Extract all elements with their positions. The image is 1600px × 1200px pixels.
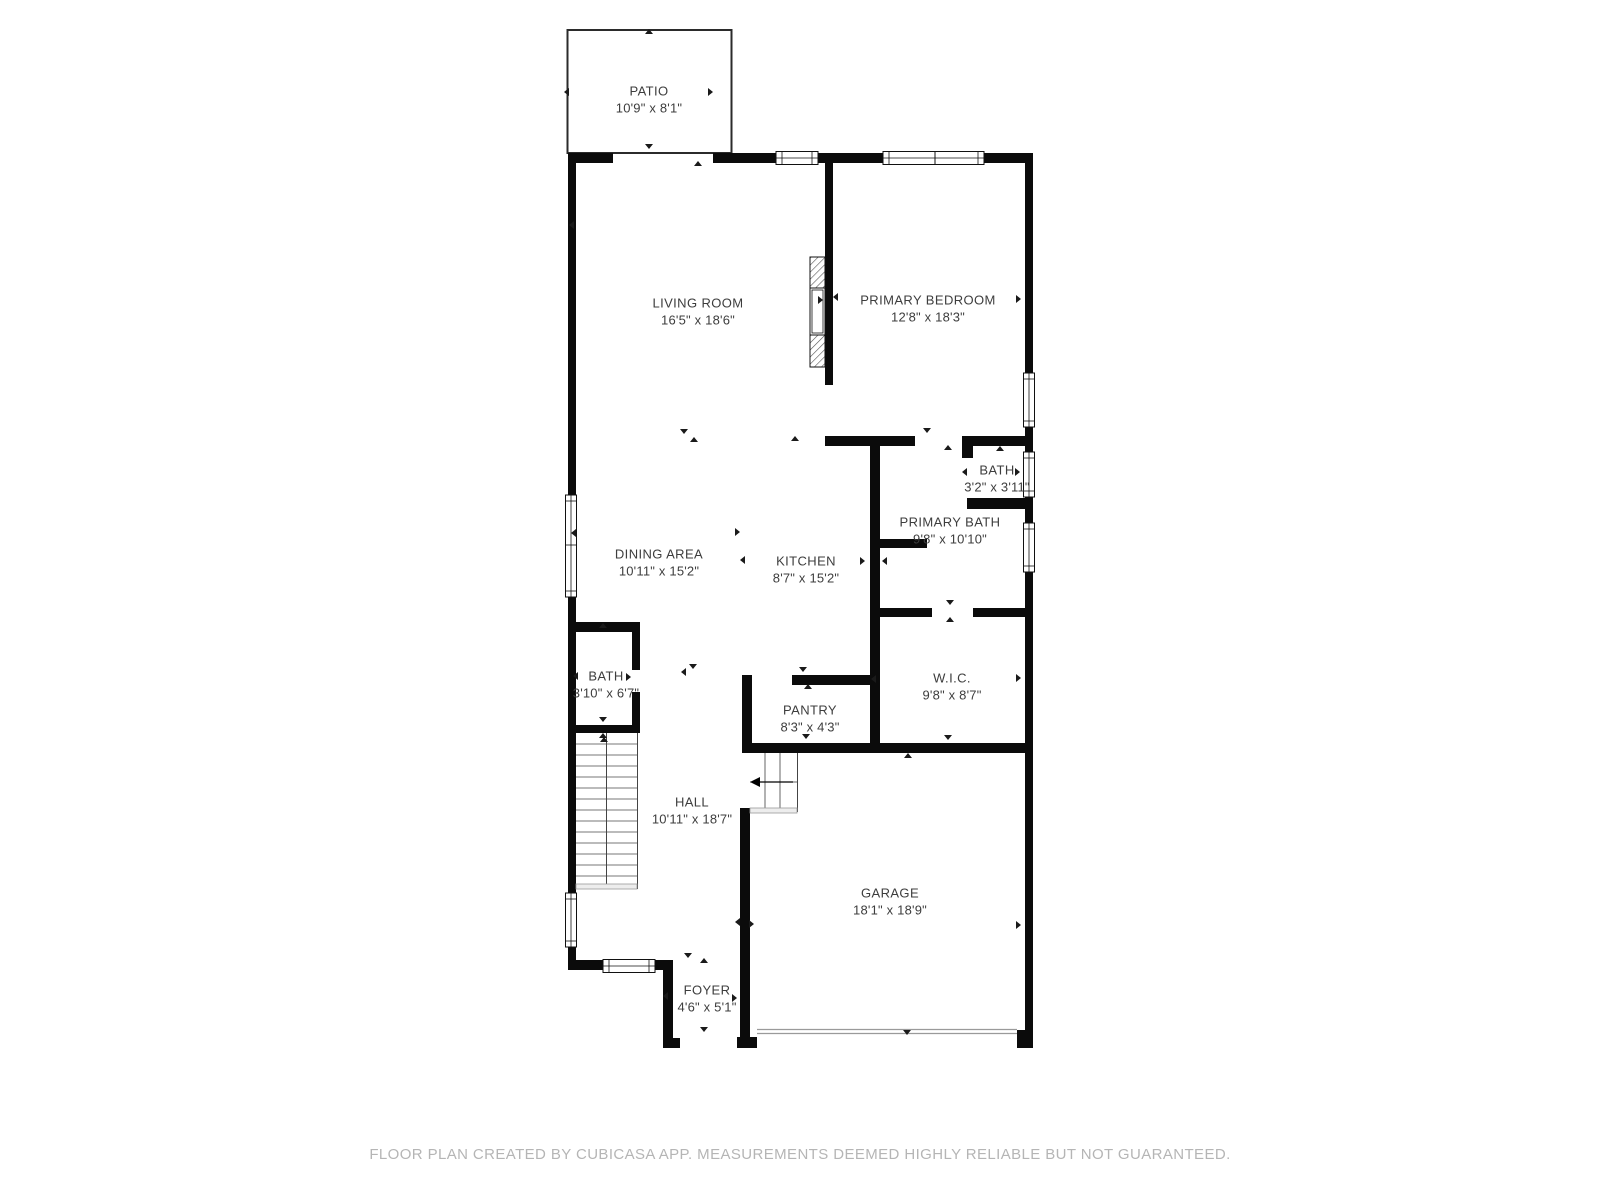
fireplace bbox=[810, 257, 825, 367]
footer-disclaimer: FLOOR PLAN CREATED BY CUBICASA APP. MEAS… bbox=[0, 1146, 1600, 1163]
staircase-garage bbox=[750, 753, 798, 813]
primary-bath-window bbox=[1024, 523, 1035, 572]
bedroom-window-right bbox=[1024, 373, 1035, 427]
staircase-main bbox=[576, 733, 638, 889]
foyer-window bbox=[603, 960, 655, 973]
floorplan-page: PATIO10'9" x 8'1"LIVING ROOM16'5" x 18'6… bbox=[0, 0, 1600, 1200]
patio-outline bbox=[568, 30, 732, 153]
bedroom-window-top-2 bbox=[935, 152, 984, 165]
bath-window bbox=[1024, 452, 1035, 497]
walls-layer bbox=[568, 153, 1033, 1048]
dining-window bbox=[566, 495, 577, 597]
hall-window bbox=[566, 893, 577, 947]
garage-door-line bbox=[757, 1030, 1017, 1034]
bedroom-window-top-1 bbox=[883, 152, 935, 165]
windows-layer bbox=[566, 152, 1035, 973]
floorplan-svg bbox=[0, 0, 1600, 1200]
living-room-window bbox=[776, 152, 818, 165]
